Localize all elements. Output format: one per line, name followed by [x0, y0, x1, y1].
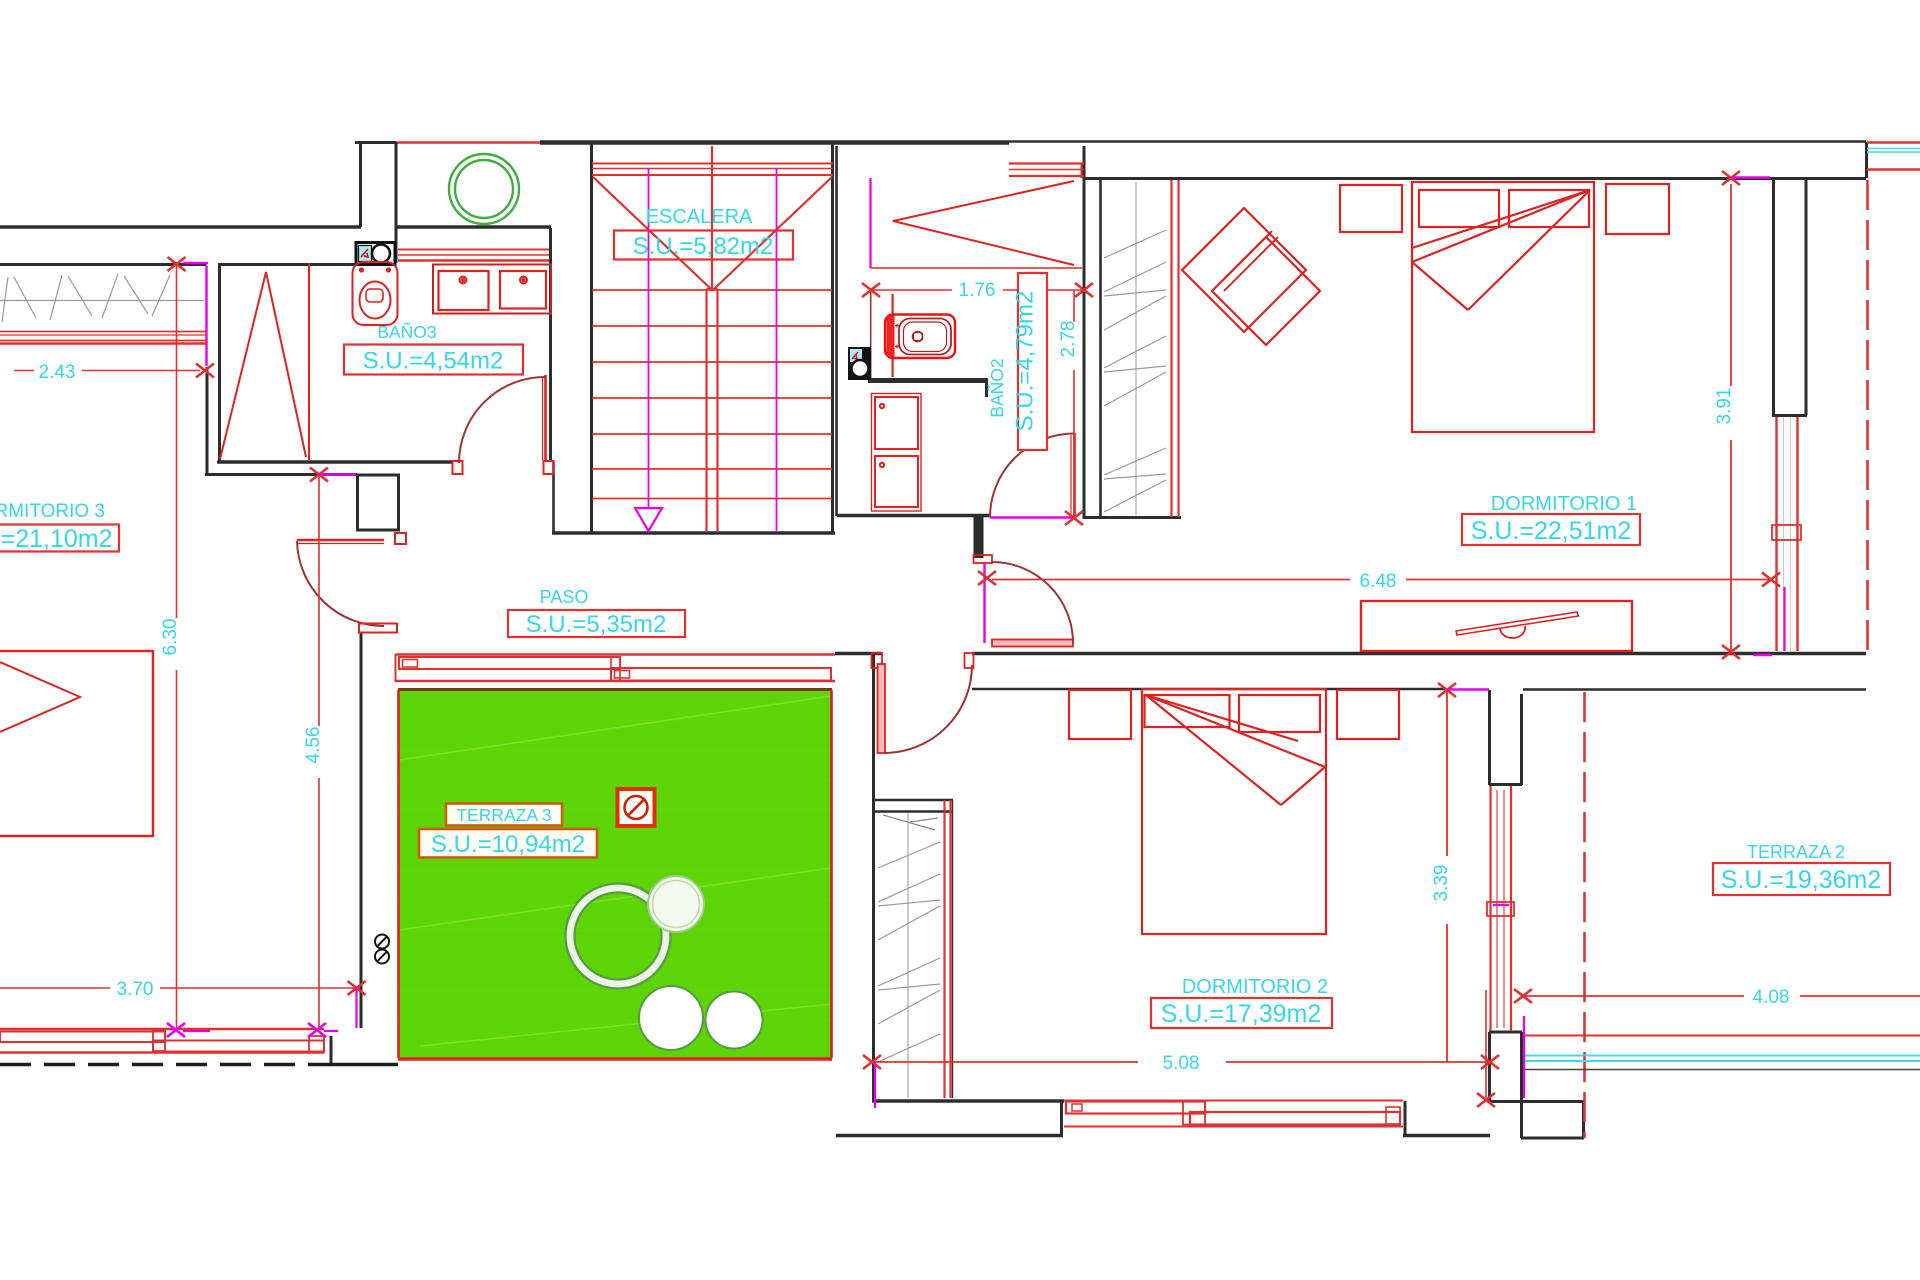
svg-text:6.30: 6.30 — [160, 619, 181, 656]
svg-text:S.U.=4,79m2: S.U.=4,79m2 — [1012, 291, 1039, 432]
svg-text:S.U.=4,54m2: S.U.=4,54m2 — [363, 348, 504, 375]
svg-text:BAÑO2: BAÑO2 — [986, 358, 1007, 417]
svg-text:S.U.=10,94m2: S.U.=10,94m2 — [431, 831, 585, 858]
svg-text:S.U.=21,10m2: S.U.=21,10m2 — [0, 525, 113, 553]
svg-text:TERRAZA 2: TERRAZA 2 — [1747, 842, 1845, 862]
svg-text:TERRAZA 3: TERRAZA 3 — [456, 805, 551, 825]
svg-text:4.08: 4.08 — [1753, 987, 1790, 1008]
svg-text:S.U.=22,51m2: S.U.=22,51m2 — [1471, 517, 1632, 545]
svg-text:S.U.=5,82m2: S.U.=5,82m2 — [633, 233, 774, 260]
svg-text:BAÑO3: BAÑO3 — [377, 321, 436, 342]
svg-text:2.78: 2.78 — [1058, 321, 1079, 358]
svg-text:DORMITORIO 2: DORMITORIO 2 — [1182, 976, 1328, 998]
svg-text:1.76: 1.76 — [959, 280, 996, 301]
svg-text:DORMITORIO 1: DORMITORIO 1 — [1491, 493, 1637, 515]
svg-text:5.08: 5.08 — [1163, 1053, 1200, 1074]
svg-text:4.56: 4.56 — [303, 727, 324, 764]
svg-text:2.43: 2.43 — [39, 362, 76, 383]
svg-text:3.39: 3.39 — [1431, 865, 1452, 902]
svg-text:ESCALERA: ESCALERA — [646, 206, 753, 228]
svg-text:6.48: 6.48 — [1360, 571, 1397, 592]
svg-text:PASO: PASO — [540, 587, 589, 607]
svg-text:DORMITORIO 3: DORMITORIO 3 — [0, 501, 105, 522]
svg-text:S.U.=17,39m2: S.U.=17,39m2 — [1161, 1000, 1322, 1028]
svg-text:3.70: 3.70 — [117, 979, 154, 1000]
svg-text:S.U.=5,35m2: S.U.=5,35m2 — [526, 611, 667, 638]
svg-text:3.91: 3.91 — [1714, 388, 1735, 425]
svg-text:S.U.=19,36m2: S.U.=19,36m2 — [1721, 866, 1882, 894]
